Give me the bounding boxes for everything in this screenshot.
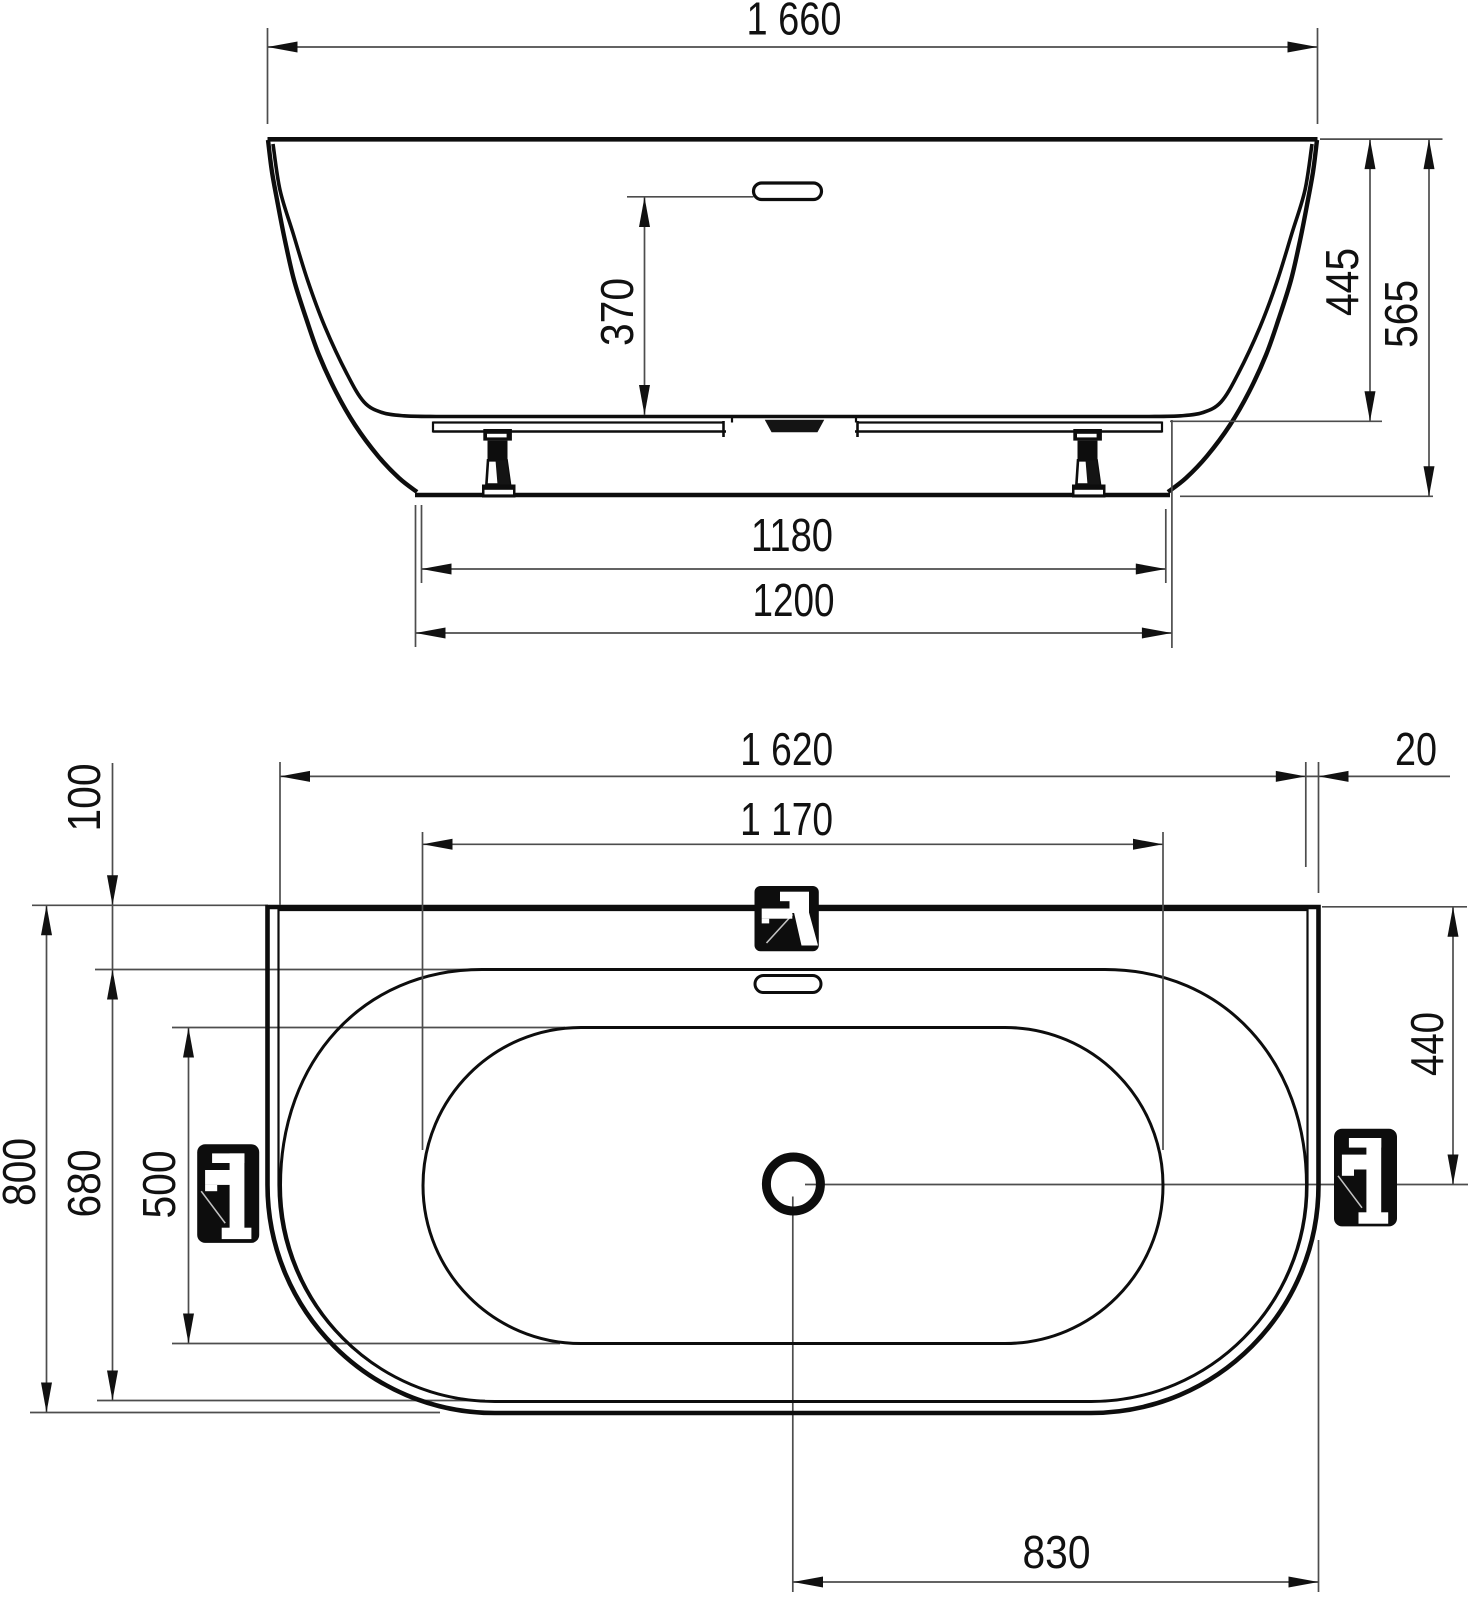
- svg-text:1 620: 1 620: [740, 723, 833, 775]
- svg-text:20: 20: [1395, 723, 1437, 775]
- svg-text:100: 100: [58, 764, 110, 832]
- svg-text:440: 440: [1401, 1012, 1453, 1076]
- svg-text:830: 830: [1023, 1526, 1091, 1578]
- svg-text:370: 370: [591, 278, 643, 346]
- svg-text:1 170: 1 170: [740, 793, 833, 845]
- svg-text:445: 445: [1316, 248, 1368, 316]
- svg-text:500: 500: [133, 1151, 185, 1219]
- svg-text:1200: 1200: [753, 574, 835, 626]
- svg-text:680: 680: [58, 1150, 110, 1218]
- svg-text:800: 800: [0, 1138, 45, 1206]
- svg-text:1180: 1180: [751, 509, 833, 561]
- svg-text:565: 565: [1375, 280, 1427, 348]
- svg-text:1 660: 1 660: [747, 0, 842, 45]
